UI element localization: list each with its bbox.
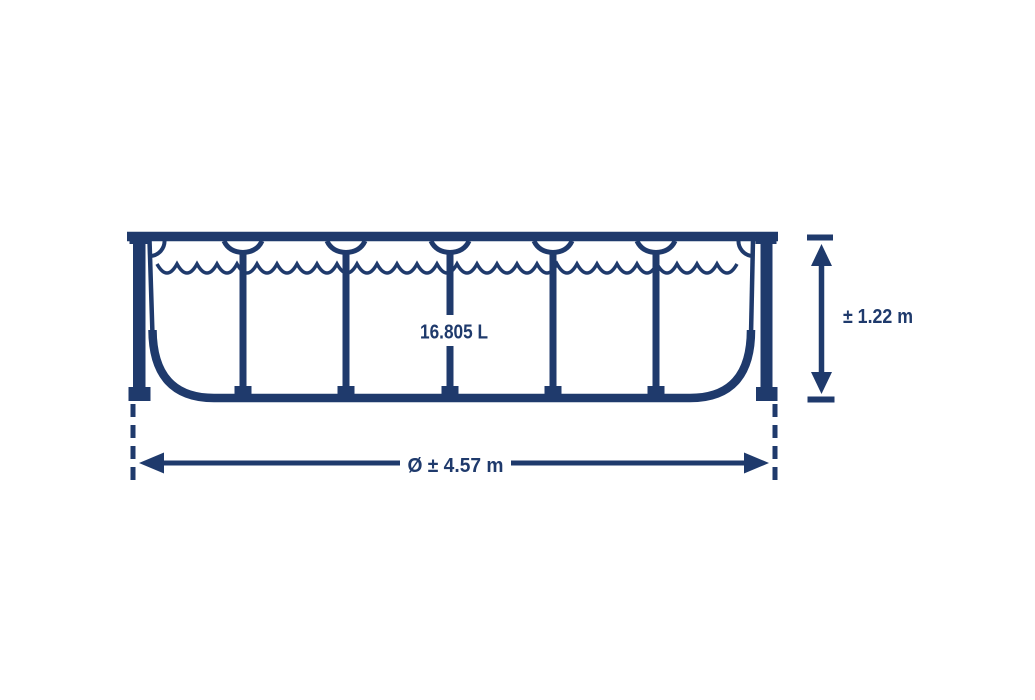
post-foot-right xyxy=(756,387,778,401)
leg-foot xyxy=(338,386,355,394)
capacity-label: 16.805 L xyxy=(420,321,488,344)
leg-foot xyxy=(648,386,665,394)
height-tick-bottom xyxy=(808,397,835,403)
pool-dimension-figure: 16.805 L ± 1.22 m Ø ± 4.57 m xyxy=(0,0,1035,700)
leg-foot xyxy=(545,386,562,394)
post-foot-left xyxy=(129,387,151,401)
outer-post-left xyxy=(133,234,146,390)
leg-foot xyxy=(442,386,459,394)
diameter-dimension-label: Ø ± 4.57 m xyxy=(408,454,504,477)
height-tick-top xyxy=(807,235,833,241)
leg-foot xyxy=(235,386,252,394)
outer-post-right xyxy=(761,243,773,390)
height-dimension-label: ± 1.22 m xyxy=(843,305,913,328)
post-cap-right xyxy=(756,234,777,245)
pool-dimension-diagram: 16.805 L ± 1.22 m Ø ± 4.57 m xyxy=(0,0,1035,700)
